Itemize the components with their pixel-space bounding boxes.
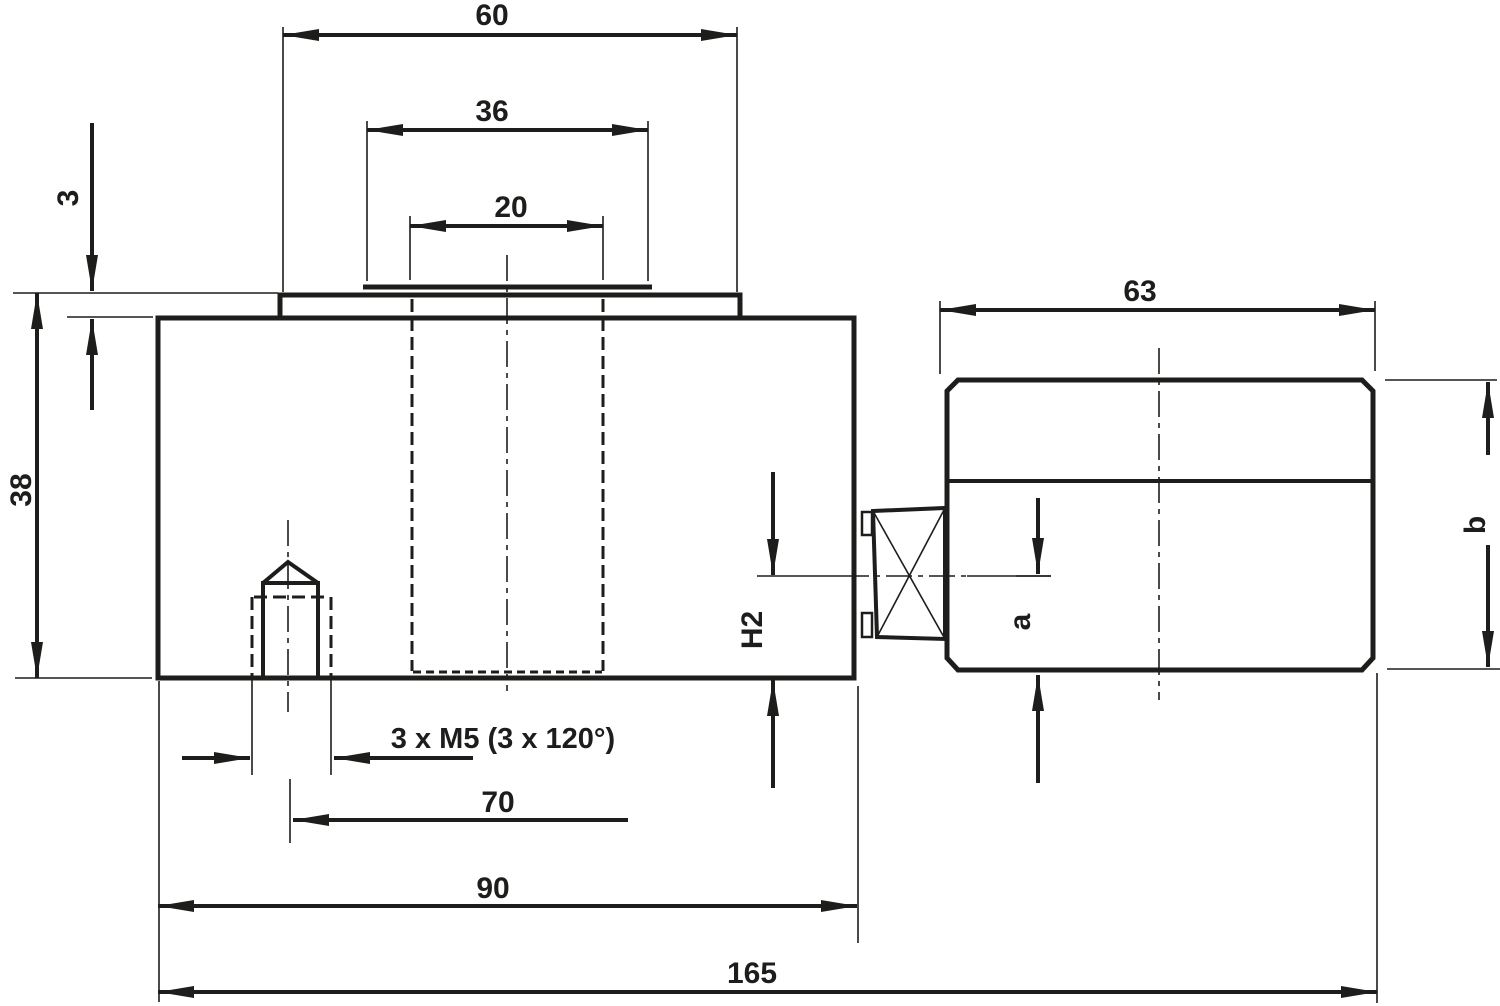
- dimension-value: 165: [727, 957, 777, 990]
- gland-tab-top: [862, 512, 872, 535]
- gland-tab-bottom: [862, 613, 872, 637]
- dimension-b: b: [1385, 380, 1500, 669]
- dimension-plate-thickness: 3: [13, 123, 278, 410]
- threaded-hole-m5: [252, 562, 331, 676]
- dimension-h2: H2: [736, 472, 773, 788]
- dimension-value: 60: [475, 0, 508, 32]
- dimension-value: H2: [736, 611, 769, 649]
- dimension-boss-width: 36: [367, 95, 648, 281]
- dimension-value: b: [1459, 516, 1492, 534]
- dimension-value: 36: [475, 95, 508, 128]
- dimension-value: 70: [481, 786, 514, 819]
- dimension-thread-callout: 3 x M5 (3 x 120°): [182, 679, 615, 775]
- mounting-plate-outline: [280, 295, 740, 318]
- cable-gland: [862, 508, 945, 639]
- dimension-body-height: 38: [5, 293, 152, 678]
- dimension-value: 38: [5, 473, 38, 506]
- dimension-value: 90: [476, 872, 509, 905]
- dimension-value: 20: [494, 191, 527, 224]
- dimension-value: 63: [1123, 275, 1156, 308]
- dimension-a: a: [1004, 498, 1051, 783]
- dimension-value: a: [1004, 613, 1037, 630]
- dimension-value: 3: [52, 190, 85, 207]
- drill-point: [263, 562, 318, 583]
- bellows-diagonal-2: [877, 508, 945, 637]
- dimension-overall-length: 165: [158, 673, 1377, 1003]
- dimension-connector-length: 63: [940, 275, 1375, 374]
- centerlines: [288, 255, 1159, 712]
- drawing-canvas: 60 36 20 3 38 63 H2 a: [0, 0, 1500, 1006]
- dimension-bolt-circle: 70: [290, 779, 628, 843]
- dimension-plate-width: 60: [283, 0, 737, 292]
- technical-drawing: 60 36 20 3 38 63 H2 a: [0, 0, 1500, 1006]
- thread-note: 3 x M5 (3 x 120°): [391, 723, 615, 755]
